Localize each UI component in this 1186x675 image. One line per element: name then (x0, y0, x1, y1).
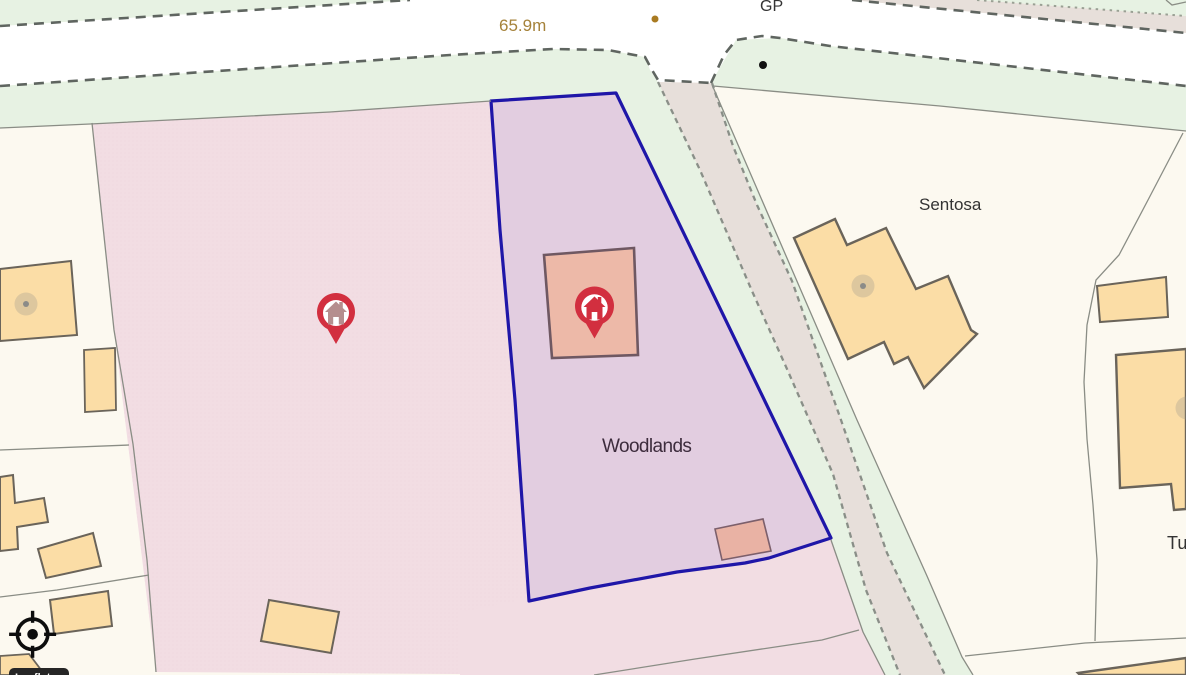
svg-text:Tu: Tu (1167, 533, 1186, 553)
svg-text:Woodlands: Woodlands (602, 436, 691, 457)
svg-text:Sentosa: Sentosa (919, 195, 982, 214)
svg-text:65.9m: 65.9m (499, 16, 546, 35)
svg-text:GP: GP (760, 0, 783, 15)
